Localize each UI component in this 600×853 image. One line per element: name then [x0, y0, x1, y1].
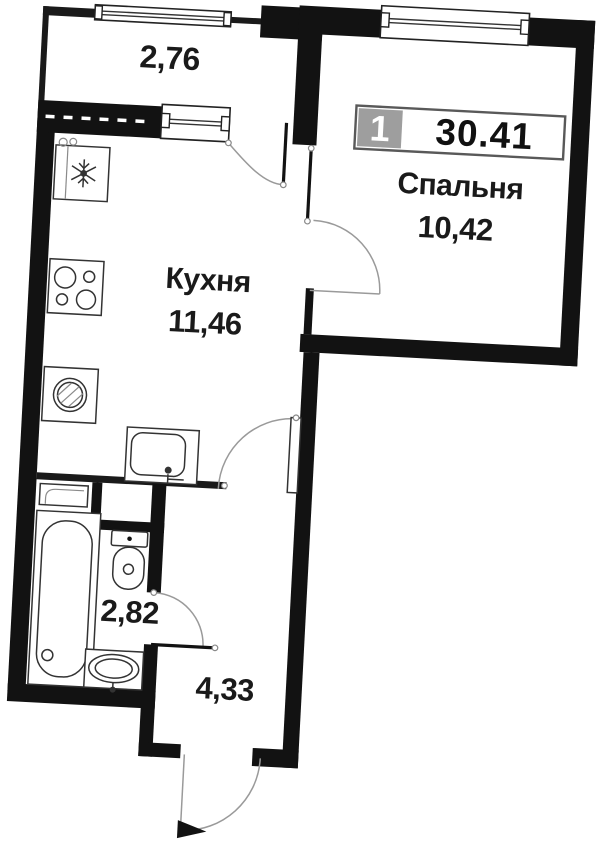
wall-below-bedroom-door: [304, 288, 314, 334]
wall-bedroom-right: [559, 20, 595, 366]
kitchen-sink-icon: [125, 427, 200, 485]
entrance-door: [177, 754, 260, 842]
washing-machine-icon: [42, 367, 99, 424]
wall-bedroom-bottom: [300, 334, 579, 367]
wall-bedroom-top-left: [298, 5, 381, 37]
shelf-icon: [39, 483, 88, 506]
badge-room-count: 1: [369, 107, 391, 149]
kitchen-area-label: 11,46: [167, 303, 242, 342]
floor-plan-canvas: 2,76 Кухня 11,46 Спальня 10,42 2,82 4,33…: [0, 0, 600, 853]
wall-hallway-right: [282, 352, 320, 768]
bedroom-door: [301, 145, 387, 294]
kitchen-name-label: Кухня: [165, 262, 252, 299]
plan-rotated-group: 2,76 Кухня 11,46 Спальня 10,42 2,82 4,33…: [0, 0, 595, 853]
balcony-area-label: 2,76: [139, 38, 201, 77]
wall-balcony-top-right: [231, 17, 263, 25]
bathroom-area-label: 2,82: [100, 593, 160, 631]
kitchen-hallway-door: [218, 411, 301, 493]
wall-entrance-left-foot: [138, 742, 181, 758]
bedroom-name-label: Спальня: [397, 167, 525, 207]
stove-icon: [47, 259, 104, 316]
bedroom-area-label: 10,42: [417, 209, 494, 248]
bathroom-sink-icon: [84, 649, 144, 694]
bathroom-fixtures: [28, 483, 153, 694]
hallway-area-label: 4,33: [195, 670, 255, 708]
bedroom-window: [380, 6, 529, 46]
fridge-icon: [53, 137, 110, 201]
wall-bathroom-east-upper: [147, 478, 167, 593]
apartment-badge: 1 30.41: [354, 106, 565, 160]
wall-balcony-top-left: [43, 6, 95, 18]
balcony-window: [95, 5, 232, 27]
kitchen-balcony-window: [161, 104, 231, 142]
toilet-icon: [109, 530, 148, 590]
entrance-door-leaf: [177, 820, 207, 839]
wall-balcony-left: [38, 6, 49, 102]
balcony-door: [223, 120, 289, 188]
badge-total-area: 30.41: [434, 111, 534, 157]
floor-plan-svg: 2,76 Кухня 11,46 Спальня 10,42 2,82 4,33…: [0, 0, 600, 853]
